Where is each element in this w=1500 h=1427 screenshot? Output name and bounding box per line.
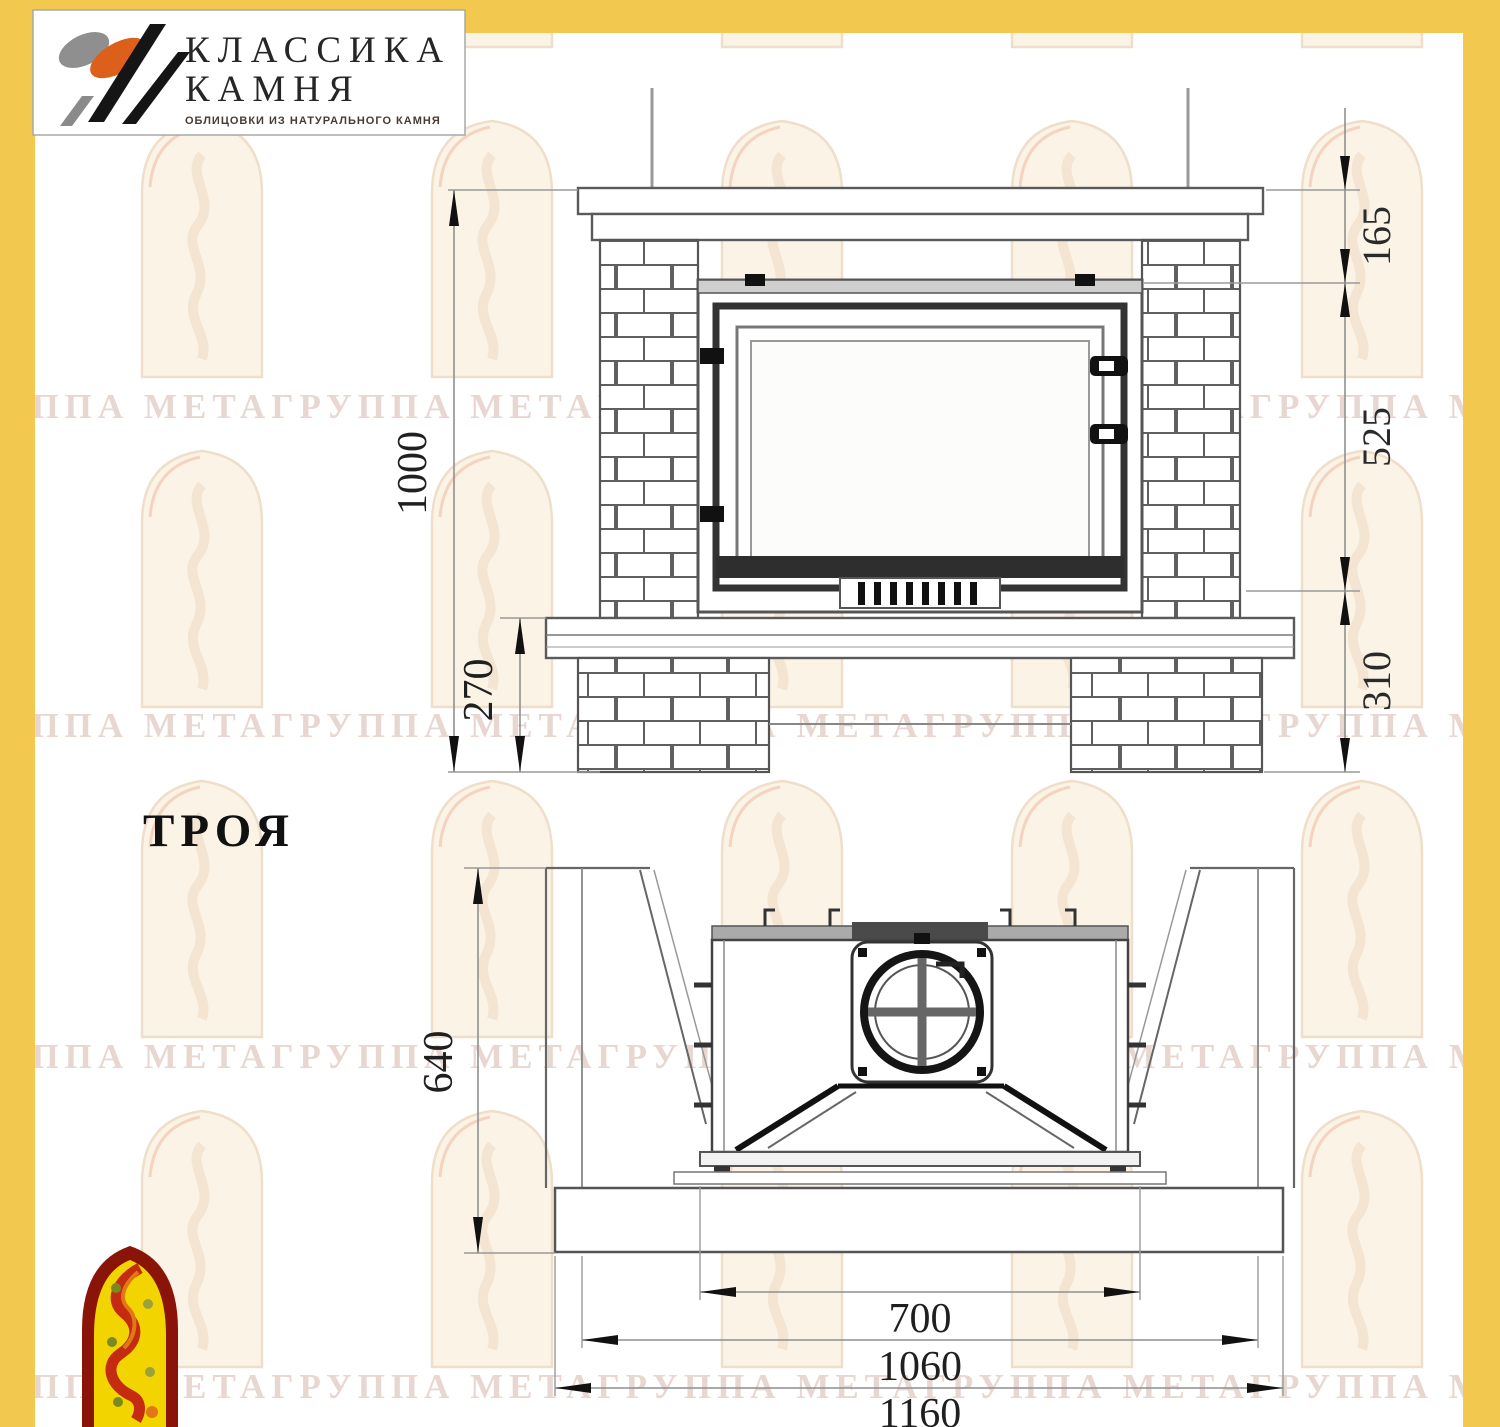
door-handle-top bbox=[1090, 356, 1128, 376]
door-bottom-band bbox=[716, 556, 1124, 578]
model-name: ТРОЯ bbox=[143, 805, 295, 857]
fascia-bar2 bbox=[674, 1172, 1166, 1184]
front-slab bbox=[555, 1188, 1283, 1252]
dim-firebox-height-label: 525 bbox=[1354, 407, 1399, 467]
door-hinge-bottom bbox=[700, 506, 724, 522]
door-top-clip-left bbox=[745, 274, 765, 286]
plinth-left bbox=[578, 658, 769, 772]
frame-right bbox=[1463, 0, 1500, 1427]
flue-outlet bbox=[852, 933, 992, 1082]
brick-column-left bbox=[600, 240, 698, 618]
fascia-bar bbox=[700, 1152, 1140, 1166]
door-handle-bottom bbox=[1090, 424, 1128, 444]
dim-overall-width-label: 1160 bbox=[879, 1391, 961, 1427]
watermark-row: ГРУППА МЕТАГРУППА МЕТАГРУППА МЕТАГРУППА … bbox=[0, 1367, 1500, 1406]
drawing-canvas: ГРУППА МЕТАГРУППА МЕТАГРУППА МЕТАГРУППА … bbox=[0, 0, 1500, 1427]
dim-plinth-height-label: 270 bbox=[456, 659, 502, 722]
plinth-right bbox=[1071, 658, 1262, 772]
logo-title-line2: КАМНЯ bbox=[185, 69, 361, 110]
logo-title-line1: КЛАССИКА bbox=[185, 30, 451, 71]
frame-left bbox=[0, 0, 35, 1427]
brand-logo: КЛАССИКА КАМНЯ ОБЛИЦОВКИ ИЗ НАТУРАЛЬНОГО… bbox=[33, 10, 465, 135]
dim-opening-width-label: 700 bbox=[889, 1296, 952, 1342]
dim-total-height-label: 1000 bbox=[390, 431, 436, 515]
dim-base-height-label: 310 bbox=[1354, 651, 1399, 711]
dim-body-width-label: 1060 bbox=[878, 1344, 962, 1390]
mantel-shelf-top bbox=[578, 188, 1263, 214]
mantel-shelf-step bbox=[592, 214, 1248, 240]
door-hinge-top bbox=[700, 348, 724, 364]
brick-column-right bbox=[1142, 240, 1240, 618]
door-top-clip-right bbox=[1075, 274, 1095, 286]
logo-tagline: ОБЛИЦОВКИ ИЗ НАТУРАЛЬНОГО КАМНЯ bbox=[185, 115, 441, 127]
hearth-slab bbox=[546, 618, 1294, 658]
firebox-door bbox=[698, 274, 1142, 612]
flue-tab bbox=[914, 933, 930, 944]
door-glass bbox=[751, 341, 1089, 557]
dim-depth-label: 640 bbox=[416, 1031, 462, 1094]
arch-badge bbox=[82, 1246, 178, 1427]
page: ГРУППА МЕТАГРУППА МЕТАГРУППА МЕТАГРУППА … bbox=[0, 0, 1500, 1427]
dim-top-offset-label: 165 bbox=[1354, 206, 1399, 266]
